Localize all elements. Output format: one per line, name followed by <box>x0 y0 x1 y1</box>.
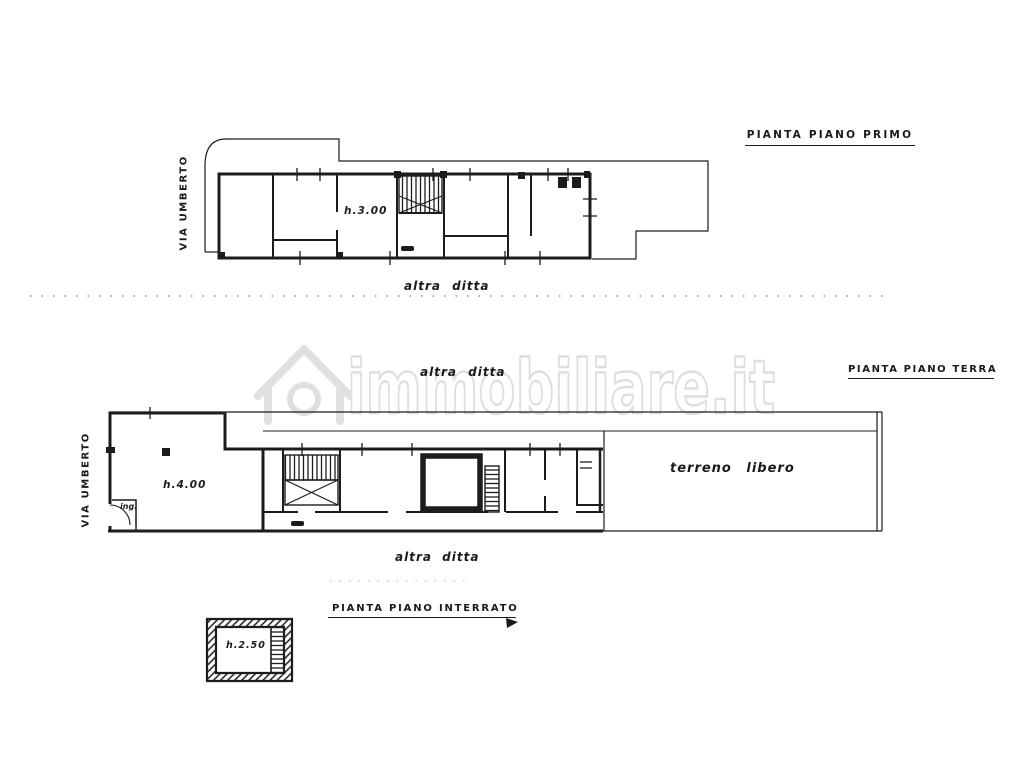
floor-plan-sheet: immobiliare.it <box>0 0 1024 768</box>
boundary-label-first-floor: altra ditta <box>404 280 489 293</box>
open-land-label: terreno libero <box>670 462 795 476</box>
room-height-first-floor: h.3.00 <box>344 206 387 218</box>
entrance-label: ing. <box>120 503 137 512</box>
house-logo-icon <box>258 349 350 421</box>
stairs-hatch-ground-floor <box>285 455 338 480</box>
ladder-hatch <box>485 466 499 512</box>
plan-linework: immobiliare.it <box>0 0 1024 768</box>
first-floor-title: PIANTA PIANO PRIMO <box>745 130 915 146</box>
basement-title-arrow <box>506 618 518 628</box>
watermark-logo: immobiliare.it <box>258 345 775 431</box>
street-label-ground-floor: VIA UMBERTO <box>81 438 92 528</box>
boundary-label-ground-top: altra ditta <box>420 366 505 379</box>
basement-title: PIANTA PIANO INTERRATO <box>328 603 516 618</box>
room-height-basement: h.2.50 <box>226 641 266 651</box>
boundary-label-ground-bottom: altra ditta <box>395 551 479 564</box>
basement-stairs-hatch <box>271 627 284 673</box>
watermark-text: immobiliare.it <box>347 345 775 431</box>
room-height-ground-floor: h.4.00 <box>163 480 206 492</box>
ground-floor-title: PIANTA PIANO TERRA <box>848 364 994 379</box>
stairs-hatch-first-floor <box>399 176 442 213</box>
shaft-room <box>423 456 480 509</box>
street-label-first-floor: VIA UMBERTO <box>179 161 190 251</box>
first-floor-plan <box>205 139 708 265</box>
